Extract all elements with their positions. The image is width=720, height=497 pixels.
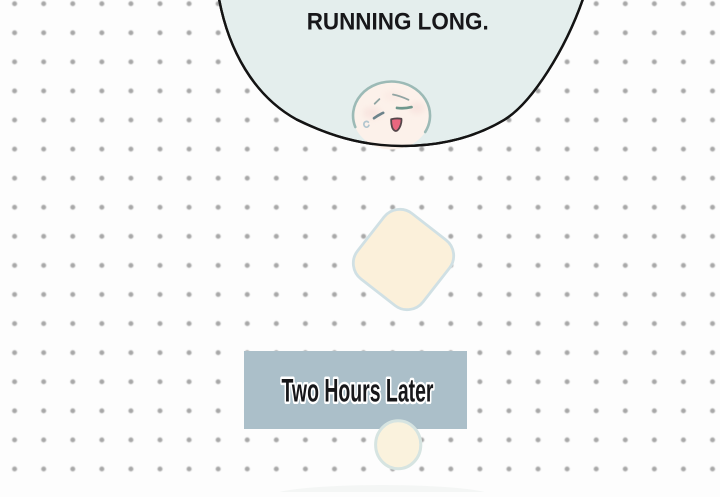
svg-text:RUNNING LONG.: RUNNING LONG.	[307, 8, 489, 35]
svg-text:Two Hours Later: Two Hours Later	[282, 372, 434, 408]
